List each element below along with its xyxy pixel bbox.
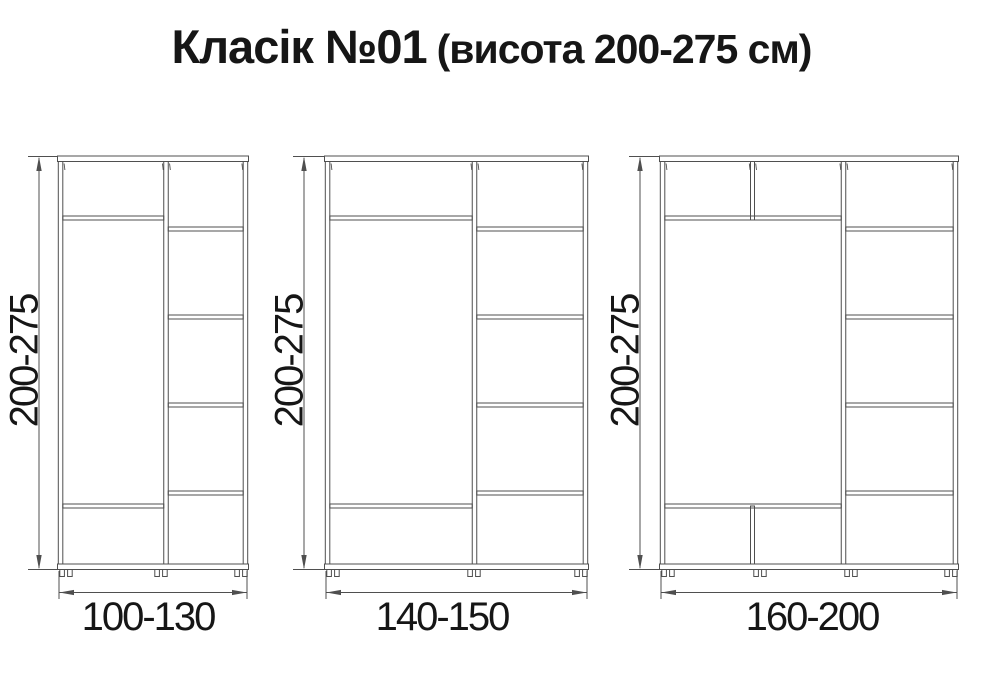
width-dimension-label-1: 100-130 bbox=[82, 594, 215, 640]
height-dimension-label-1: 200-275 bbox=[3, 295, 48, 428]
wardrobe-3-drawing bbox=[629, 156, 959, 599]
width-dimension-label-3: 160-200 bbox=[746, 594, 879, 640]
width-dimension-label-2: 140-150 bbox=[376, 594, 509, 640]
wardrobe-spec-sheet: Класік №01(висота 200-275 см) 200-275 20… bbox=[0, 0, 983, 700]
wardrobe-1-drawing bbox=[28, 156, 249, 599]
wardrobe-2-drawing bbox=[293, 156, 589, 599]
height-dimension-label-3: 200-275 bbox=[604, 295, 649, 428]
height-dimension-label-2: 200-275 bbox=[268, 295, 313, 428]
